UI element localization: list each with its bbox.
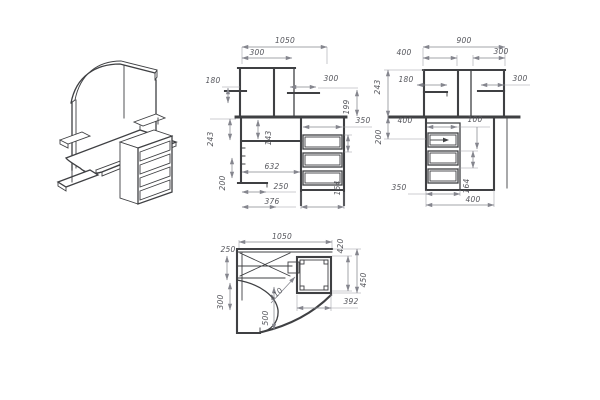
plan-dim-right-depth: 450 (359, 273, 368, 288)
side-dim-opening-width: 350 (392, 183, 407, 192)
side-dim-front-section: 300 (494, 47, 509, 56)
plan-dim-pedestal-width: 392 (344, 297, 359, 306)
plan-view: 1050 250 300 500 410 420 450 392 (216, 232, 368, 333)
side-dim-hutch-height: 243 (373, 80, 382, 95)
plan-dim-overall-width: 1050 (272, 232, 292, 241)
front-dim-left-shelf: 180 (206, 76, 221, 85)
front-dim-drawer-pitch: 164 (333, 181, 342, 196)
side-dim-overall-depth: 900 (457, 36, 472, 45)
plan-dim-curve-offset: 500 (261, 311, 270, 326)
front-dim-hutch-left-width: 300 (250, 48, 265, 57)
plan-dim-right-opening: 420 (336, 239, 345, 254)
plan-dim-wall-shelf-depth: 250 (221, 245, 236, 254)
side-dim-back-section: 400 (397, 48, 412, 57)
side-dim-shelf-inset: 180 (399, 75, 414, 84)
side-dim-pedestal-inner: 400 (398, 116, 413, 125)
front-dim-under-top: 243 (206, 132, 215, 147)
front-dim-inner-width: 632 (265, 162, 280, 171)
side-dim-shelf-depth: 300 (513, 74, 528, 83)
plan-dim-diagonal: 410 (268, 286, 285, 303)
plan-dim-left-wing: 300 (216, 295, 225, 310)
front-dim-overall-width: 1050 (275, 36, 295, 45)
front-dim-drawer-opening: 350 (356, 116, 371, 125)
side-dim-under-top: 200 (374, 130, 383, 145)
front-dim-leg-zone: 200 (218, 176, 227, 191)
front-dim-foot-width: 250 (274, 182, 289, 191)
front-dim-right-shelf: 300 (324, 74, 339, 83)
front-dim-shelf-to-top: 199 (342, 100, 351, 115)
technical-drawing-canvas: 1050 300 180 300 199 243 143 632 200 250… (0, 0, 600, 400)
front-dim-inner-clear: 143 (264, 131, 273, 146)
side-dim-pedestal-width: 400 (466, 195, 481, 204)
side-dim-drawer-pitch: 164 (462, 179, 471, 194)
side-view: 900 400 300 243 180 300 200 400 100 164 … (373, 36, 530, 207)
front-dim-left-section: 376 (265, 197, 280, 206)
isometric-view (58, 61, 176, 204)
front-view: 1050 300 180 300 199 243 143 632 200 250… (206, 36, 372, 209)
side-dim-gap: 100 (468, 115, 483, 124)
drawing-sheet: 1050 300 180 300 199 243 143 632 200 250… (0, 0, 600, 400)
